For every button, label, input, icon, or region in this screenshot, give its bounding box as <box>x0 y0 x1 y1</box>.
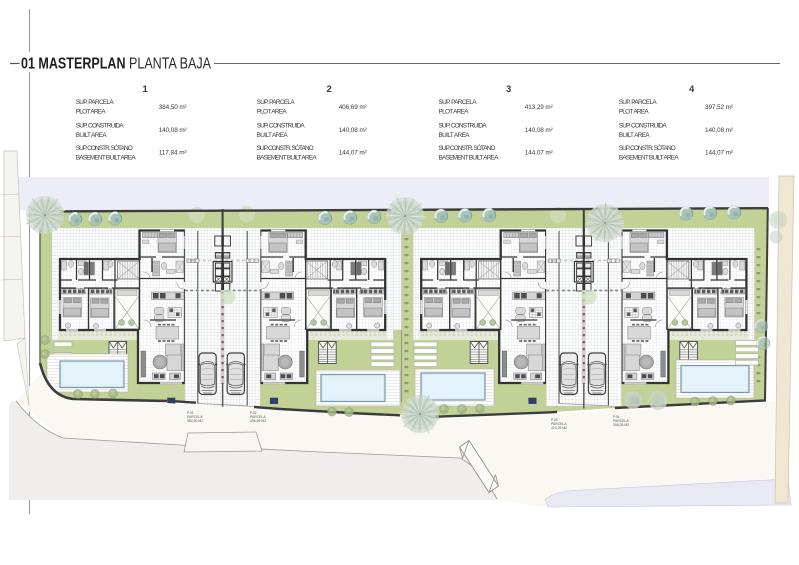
svg-text:144,07 m²: 144,07 m² <box>705 150 733 157</box>
svg-text:BUILT AREA: BUILT AREA <box>76 132 108 139</box>
svg-text:144,07 m²: 144,07 m² <box>339 150 367 157</box>
svg-text:117,84 m²: 117,84 m² <box>159 150 187 157</box>
svg-text:01 MASTERPLAN PLANTA BAJA: 01 MASTERPLAN PLANTA BAJA <box>21 56 212 73</box>
svg-text:BUILT AREA: BUILT AREA <box>257 132 289 139</box>
svg-text:SUP. PARCELA: SUP. PARCELA <box>619 99 658 106</box>
svg-text:413,29 m²: 413,29 m² <box>525 104 553 111</box>
svg-text:397,52 m²: 397,52 m² <box>705 104 733 111</box>
svg-text:SUP. CONSTRUIDA: SUP. CONSTRUIDA <box>619 123 668 130</box>
svg-text:SUP. CONSTR. SÓTANO: SUP. CONSTR. SÓTANO <box>619 143 676 152</box>
svg-text:PLOT AREA: PLOT AREA <box>257 109 288 116</box>
svg-text:SUP. PARCELA: SUP. PARCELA <box>257 99 296 106</box>
svg-text:SUP. CONSTRUIDA: SUP. CONSTRUIDA <box>76 123 125 130</box>
svg-text:384,50 m²: 384,50 m² <box>159 104 187 111</box>
svg-text:SUP. CONSTR. SÓTANO: SUP. CONSTR. SÓTANO <box>439 143 496 152</box>
svg-text:SUP. PARCELA: SUP. PARCELA <box>76 99 115 106</box>
svg-text:SUP. CONSTRUIDA: SUP. CONSTRUIDA <box>439 123 488 130</box>
svg-text:1: 1 <box>143 84 149 95</box>
svg-text:PLOT AREA: PLOT AREA <box>76 109 107 116</box>
svg-text:PLOT AREA: PLOT AREA <box>619 109 650 116</box>
svg-text:SUP. CONSTRUIDA: SUP. CONSTRUIDA <box>257 123 306 130</box>
svg-text:BASEMENT BUILT AREA: BASEMENT BUILT AREA <box>619 155 680 162</box>
svg-text:SUP. CONSTR. SÓTANO: SUP. CONSTR. SÓTANO <box>76 143 133 152</box>
svg-text:BASEMENT BUILT AREA: BASEMENT BUILT AREA <box>76 155 137 162</box>
svg-text:140,08 m²: 140,08 m² <box>705 127 733 134</box>
svg-text:BASEMENT BUILT AREA: BASEMENT BUILT AREA <box>439 155 500 162</box>
svg-text:144,07 m²: 144,07 m² <box>525 150 553 157</box>
svg-text:BUILT AREA: BUILT AREA <box>439 132 471 139</box>
svg-text:140,08 m²: 140,08 m² <box>525 127 553 134</box>
svg-text:384,50 M2: 384,50 M2 <box>187 419 203 423</box>
svg-text:SUP. CONSTR. SÓTANO: SUP. CONSTR. SÓTANO <box>257 143 314 152</box>
svg-text:140,08 m²: 140,08 m² <box>339 127 367 134</box>
svg-text:BUILT AREA: BUILT AREA <box>619 132 651 139</box>
svg-text:413,29 M2: 413,29 M2 <box>551 426 567 430</box>
svg-text:3: 3 <box>506 84 511 95</box>
svg-text:SUP. PARCELA: SUP. PARCELA <box>439 99 478 106</box>
svg-text:4: 4 <box>689 84 695 95</box>
svg-text:398,05 M2: 398,05 M2 <box>613 423 629 427</box>
svg-text:406,69 M2: 406,69 M2 <box>250 419 266 423</box>
svg-text:BASEMENT BUILT AREA: BASEMENT BUILT AREA <box>257 155 318 162</box>
svg-text:140,08 m²: 140,08 m² <box>159 127 187 134</box>
svg-text:406,69 m²: 406,69 m² <box>339 104 367 111</box>
svg-text:PLOT AREA: PLOT AREA <box>439 109 470 116</box>
svg-text:2: 2 <box>327 84 332 95</box>
